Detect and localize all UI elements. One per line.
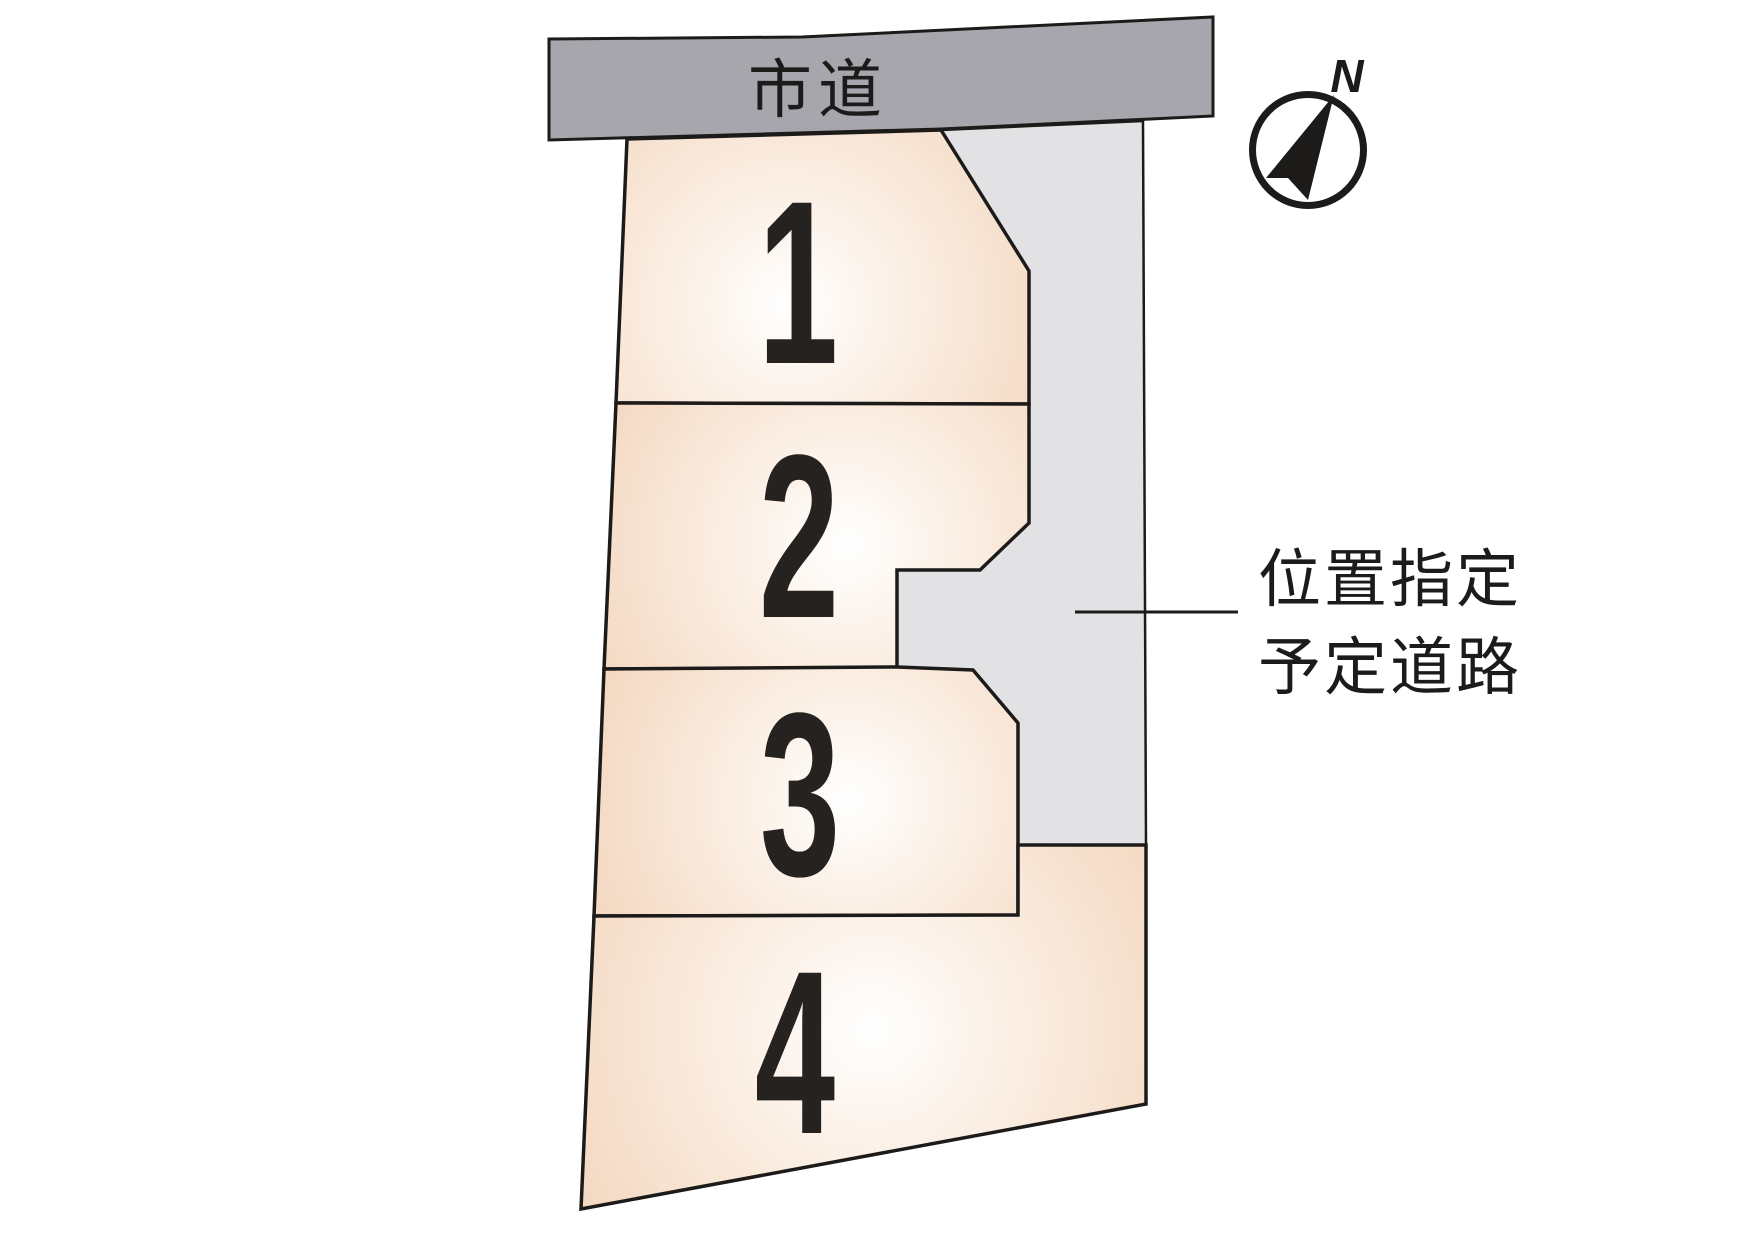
north-arrow-icon xyxy=(1266,95,1334,200)
site-plan-svg: 市道 1 2 3 4 位置指定 予定道路 N xyxy=(0,0,1755,1240)
lot-4-number: 4 xyxy=(755,924,835,1184)
lot-subdivision-diagram: 市道 1 2 3 4 位置指定 予定道路 N xyxy=(0,0,1755,1240)
planned-road-label-line2: 予定道路 xyxy=(1258,631,1522,704)
planned-road-label-line1: 位置指定 xyxy=(1258,543,1522,616)
lot-1-number: 1 xyxy=(758,154,838,414)
lot-2-number: 2 xyxy=(759,408,839,668)
lot-3-number: 3 xyxy=(760,666,840,926)
city-road-label: 市道 xyxy=(748,54,888,128)
compass: N xyxy=(1253,50,1365,206)
compass-north-label: N xyxy=(1330,50,1364,102)
